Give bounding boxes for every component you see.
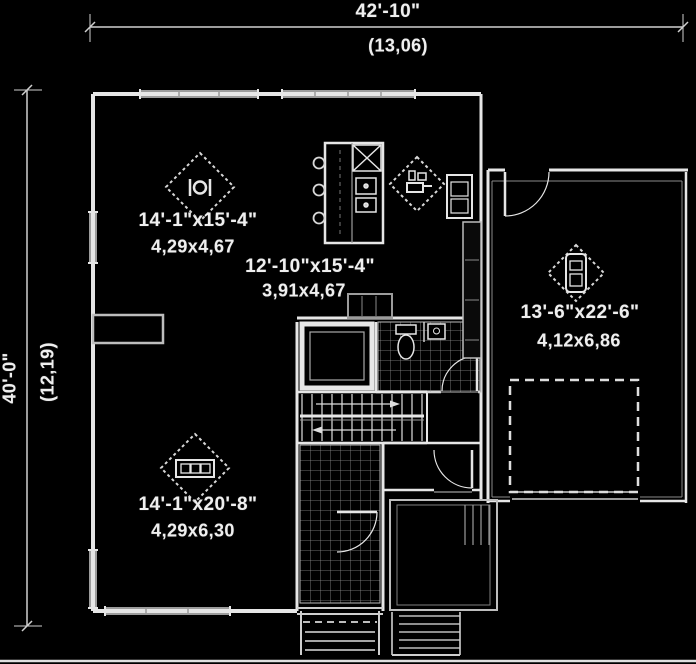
stairs xyxy=(297,392,427,443)
porch-steps xyxy=(392,612,460,655)
garage-size-metric: 4,12x6,86 xyxy=(537,331,621,352)
kitchen-island xyxy=(325,143,383,243)
living-room-size-imperial: 14'-1"x20'-8" xyxy=(139,494,258,516)
pantry-shelves xyxy=(463,222,481,358)
utility-closet xyxy=(302,324,372,388)
sofa-icon xyxy=(161,434,229,502)
floor-plan: 42'-10" (13,06) 40'-0" (12,19) 14'-1"x15… xyxy=(0,0,696,664)
dining-room-size-metric: 4,29x4,67 xyxy=(151,237,235,258)
garage-size-imperial: 13'-6"x22'-6" xyxy=(521,302,640,324)
top-dimension-metric: (13,06) xyxy=(368,36,428,57)
car-icon xyxy=(548,245,604,301)
dining-room-size-imperial: 14'-1"x15'-4" xyxy=(139,210,258,232)
porch-posts xyxy=(465,505,489,545)
garage-entry-door xyxy=(505,172,549,216)
island-stools xyxy=(314,158,325,224)
fireplace-niche xyxy=(93,315,163,343)
kitchen-size-metric: 3,91x4,67 xyxy=(262,281,346,302)
garage-door xyxy=(510,380,638,499)
entry-tile-floor xyxy=(300,445,380,603)
kitchen-bench xyxy=(348,294,392,318)
porch xyxy=(390,500,497,655)
refrigerator xyxy=(447,175,472,218)
left-dimension-metric: (12,19) xyxy=(38,342,59,402)
front-door-arc xyxy=(434,450,472,488)
front-door xyxy=(434,450,472,492)
kitchen-size-imperial: 12'-10"x15'-4" xyxy=(245,256,375,278)
living-room-size-metric: 4,29x6,30 xyxy=(151,521,235,542)
bathroom-sink xyxy=(428,324,445,339)
top-dimension-imperial: 42'-10" xyxy=(356,1,421,23)
cooktop-icon xyxy=(390,157,444,211)
entry-hall xyxy=(297,445,383,655)
entry-steps xyxy=(301,611,379,655)
toilet xyxy=(396,325,416,359)
garage-door-dashed-outline xyxy=(510,380,638,492)
left-dimension-imperial: 40'-0" xyxy=(0,352,21,403)
